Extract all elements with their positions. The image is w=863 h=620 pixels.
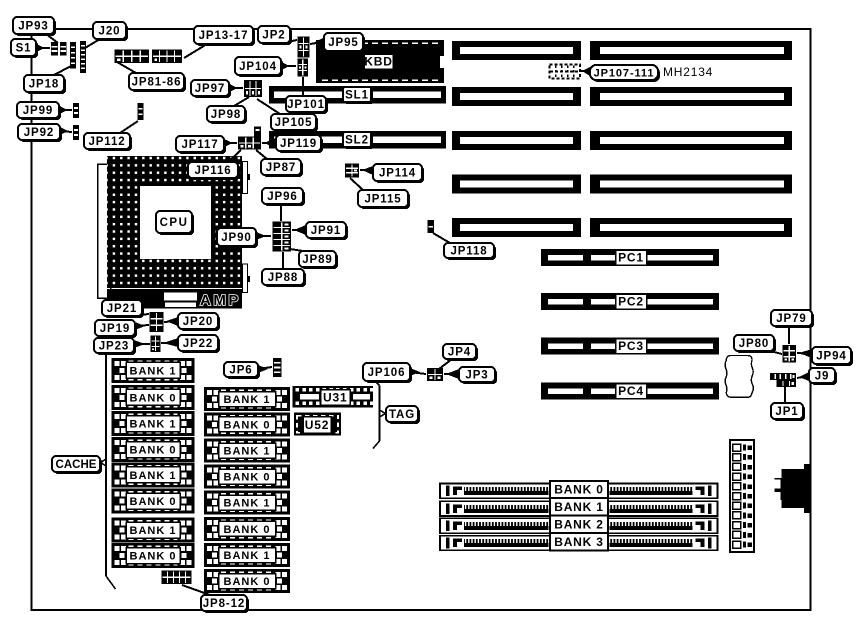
svg-text:J20: J20 bbox=[99, 26, 121, 38]
svg-text:JP23: JP23 bbox=[99, 341, 129, 353]
svg-text:JP1: JP1 bbox=[775, 406, 798, 418]
svg-text:JP93: JP93 bbox=[18, 21, 48, 33]
svg-text:JP19: JP19 bbox=[100, 323, 130, 335]
svg-text:BANK 0: BANK 0 bbox=[130, 392, 177, 404]
svg-text:JP80: JP80 bbox=[739, 338, 769, 350]
svg-text:PC4: PC4 bbox=[618, 384, 644, 398]
svg-text:BANK 0: BANK 0 bbox=[224, 419, 271, 431]
svg-text:BANK 2: BANK 2 bbox=[554, 518, 603, 532]
svg-text:BANK 1: BANK 1 bbox=[224, 446, 271, 458]
svg-text:J9: J9 bbox=[815, 371, 830, 383]
svg-text:JP104: JP104 bbox=[239, 61, 277, 73]
svg-text:JP114: JP114 bbox=[379, 168, 416, 180]
svg-text:JP3: JP3 bbox=[465, 370, 488, 382]
svg-text:JP13-17: JP13-17 bbox=[199, 30, 249, 42]
svg-text:JP94: JP94 bbox=[816, 351, 846, 363]
svg-text:PC1: PC1 bbox=[618, 251, 644, 265]
svg-text:AMP: AMP bbox=[200, 292, 241, 309]
svg-text:BANK 1: BANK 1 bbox=[130, 419, 177, 431]
svg-text:JP116: JP116 bbox=[194, 165, 231, 177]
svg-text:BANK 1: BANK 1 bbox=[130, 365, 177, 377]
svg-text:JP89: JP89 bbox=[302, 254, 332, 266]
svg-text:BANK 0: BANK 0 bbox=[554, 483, 603, 497]
svg-text:PC3: PC3 bbox=[618, 339, 644, 353]
svg-text:BANK 0: BANK 0 bbox=[130, 551, 177, 563]
svg-text:SL2: SL2 bbox=[345, 135, 369, 147]
svg-text:JP95: JP95 bbox=[328, 37, 358, 49]
svg-text:U31: U31 bbox=[323, 391, 347, 405]
svg-text:JP88: JP88 bbox=[268, 272, 298, 284]
svg-text:BANK 1: BANK 1 bbox=[554, 500, 603, 514]
svg-text:JP90: JP90 bbox=[221, 232, 251, 244]
svg-text:JP8-12: JP8-12 bbox=[203, 598, 245, 610]
svg-text:JP112: JP112 bbox=[88, 136, 125, 148]
svg-text:BANK 1: BANK 1 bbox=[224, 394, 271, 406]
svg-text:JP118: JP118 bbox=[450, 246, 487, 258]
svg-text:JP119: JP119 bbox=[280, 138, 317, 150]
svg-text:JP81-86: JP81-86 bbox=[132, 77, 182, 89]
svg-text:JP92: JP92 bbox=[24, 127, 54, 139]
svg-text:JP87: JP87 bbox=[266, 162, 296, 174]
svg-text:JP115: JP115 bbox=[364, 194, 401, 206]
svg-text:BANK 0: BANK 0 bbox=[224, 524, 271, 536]
svg-text:JP117: JP117 bbox=[181, 139, 218, 151]
svg-text:BANK 1: BANK 1 bbox=[130, 525, 177, 537]
svg-text:JP79: JP79 bbox=[776, 313, 806, 325]
svg-text:JP97: JP97 bbox=[195, 83, 225, 95]
svg-text:JP6: JP6 bbox=[229, 365, 252, 377]
svg-text:BANK 1: BANK 1 bbox=[224, 550, 271, 562]
svg-text:KBD: KBD bbox=[364, 55, 392, 69]
svg-text:BANK 0: BANK 0 bbox=[130, 445, 177, 457]
svg-text:JP106: JP106 bbox=[368, 367, 406, 379]
svg-text:TAG: TAG bbox=[389, 409, 415, 421]
svg-text:MH2134: MH2134 bbox=[663, 65, 713, 79]
svg-text:BANK 1: BANK 1 bbox=[130, 470, 177, 482]
svg-text:JP21: JP21 bbox=[107, 303, 137, 315]
svg-text:JP4: JP4 bbox=[448, 347, 471, 359]
svg-text:JP18: JP18 bbox=[29, 79, 59, 91]
svg-text:JP22: JP22 bbox=[183, 338, 213, 350]
svg-text:CACHE: CACHE bbox=[56, 459, 97, 471]
svg-text:BANK 0: BANK 0 bbox=[130, 496, 177, 508]
svg-text:S1: S1 bbox=[16, 43, 32, 55]
svg-text:JP101: JP101 bbox=[287, 99, 325, 111]
svg-text:JP99: JP99 bbox=[23, 105, 53, 117]
svg-text:JP105: JP105 bbox=[275, 117, 313, 129]
svg-text:CPU: CPU bbox=[160, 217, 189, 229]
svg-text:U52: U52 bbox=[305, 418, 329, 432]
svg-text:JP2: JP2 bbox=[262, 30, 285, 42]
svg-text:JP20: JP20 bbox=[183, 316, 213, 328]
svg-text:BANK 0: BANK 0 bbox=[224, 576, 271, 588]
svg-text:BANK 3: BANK 3 bbox=[554, 535, 603, 549]
svg-text:SL1: SL1 bbox=[345, 90, 369, 102]
svg-text:JP91: JP91 bbox=[311, 225, 341, 237]
svg-text:PC2: PC2 bbox=[618, 295, 644, 309]
svg-text:JP98: JP98 bbox=[211, 109, 241, 121]
svg-text:JP107-111: JP107-111 bbox=[594, 67, 655, 79]
svg-text:BANK 1: BANK 1 bbox=[224, 498, 271, 510]
svg-text:BANK 0: BANK 0 bbox=[224, 472, 271, 484]
svg-text:JP96: JP96 bbox=[267, 191, 297, 203]
